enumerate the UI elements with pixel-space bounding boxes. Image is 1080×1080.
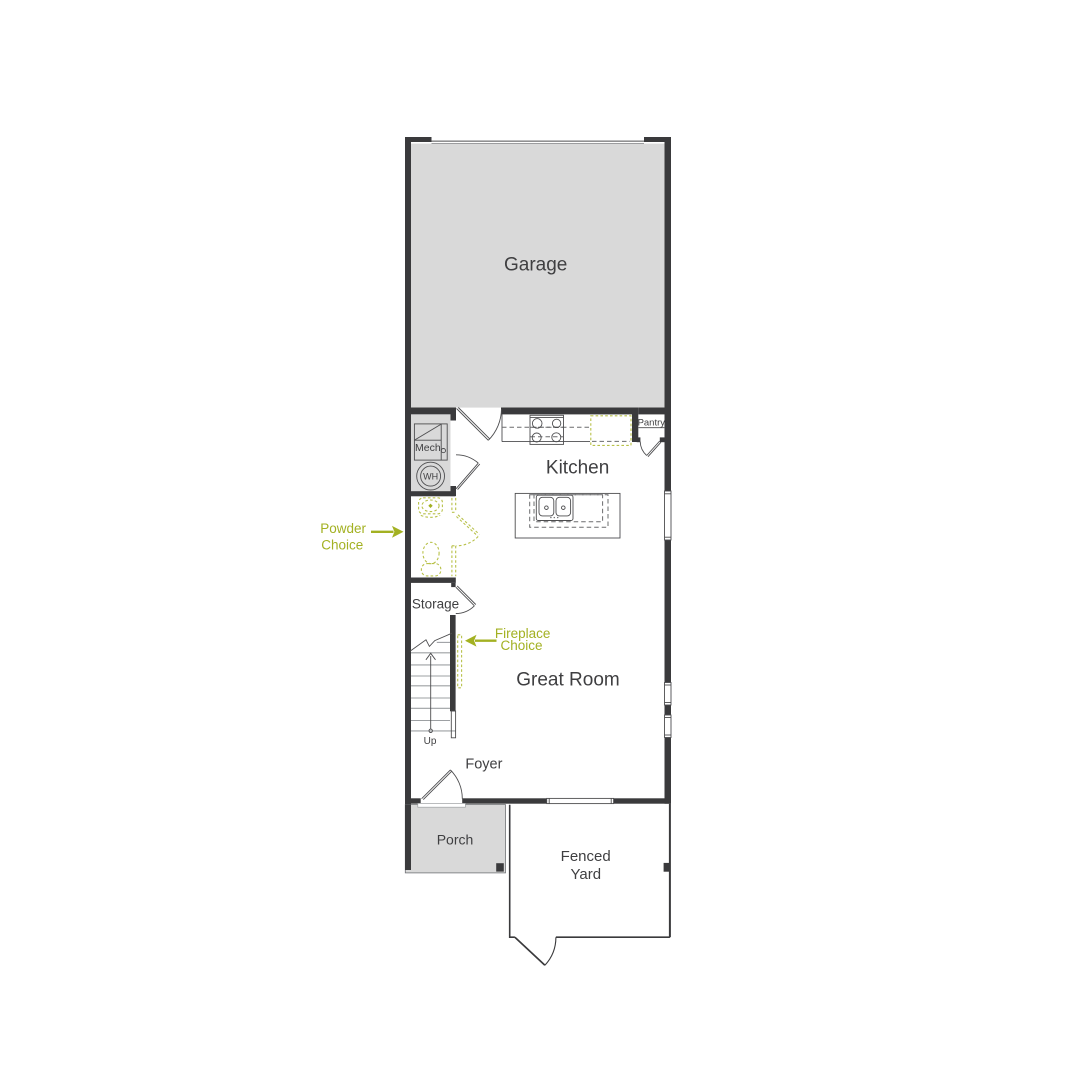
svg-text:Porch: Porch [437, 831, 474, 847]
svg-text:Yard: Yard [571, 866, 602, 883]
svg-text:Choice: Choice [500, 638, 542, 653]
svg-text:Mech: Mech [415, 442, 441, 454]
svg-text:Choice: Choice [321, 537, 363, 552]
svg-text:Foyer: Foyer [465, 756, 502, 772]
svg-text:Up: Up [424, 736, 437, 747]
svg-text:Pantry: Pantry [638, 418, 666, 429]
svg-text:WH: WH [423, 471, 438, 481]
svg-text:Great Room: Great Room [516, 669, 619, 690]
svg-text:Fenced: Fenced [561, 848, 611, 865]
svg-text:Garage: Garage [504, 254, 567, 275]
svg-text:Storage: Storage [412, 596, 459, 611]
svg-text:Powder: Powder [320, 521, 366, 536]
svg-text:Kitchen: Kitchen [546, 457, 609, 478]
